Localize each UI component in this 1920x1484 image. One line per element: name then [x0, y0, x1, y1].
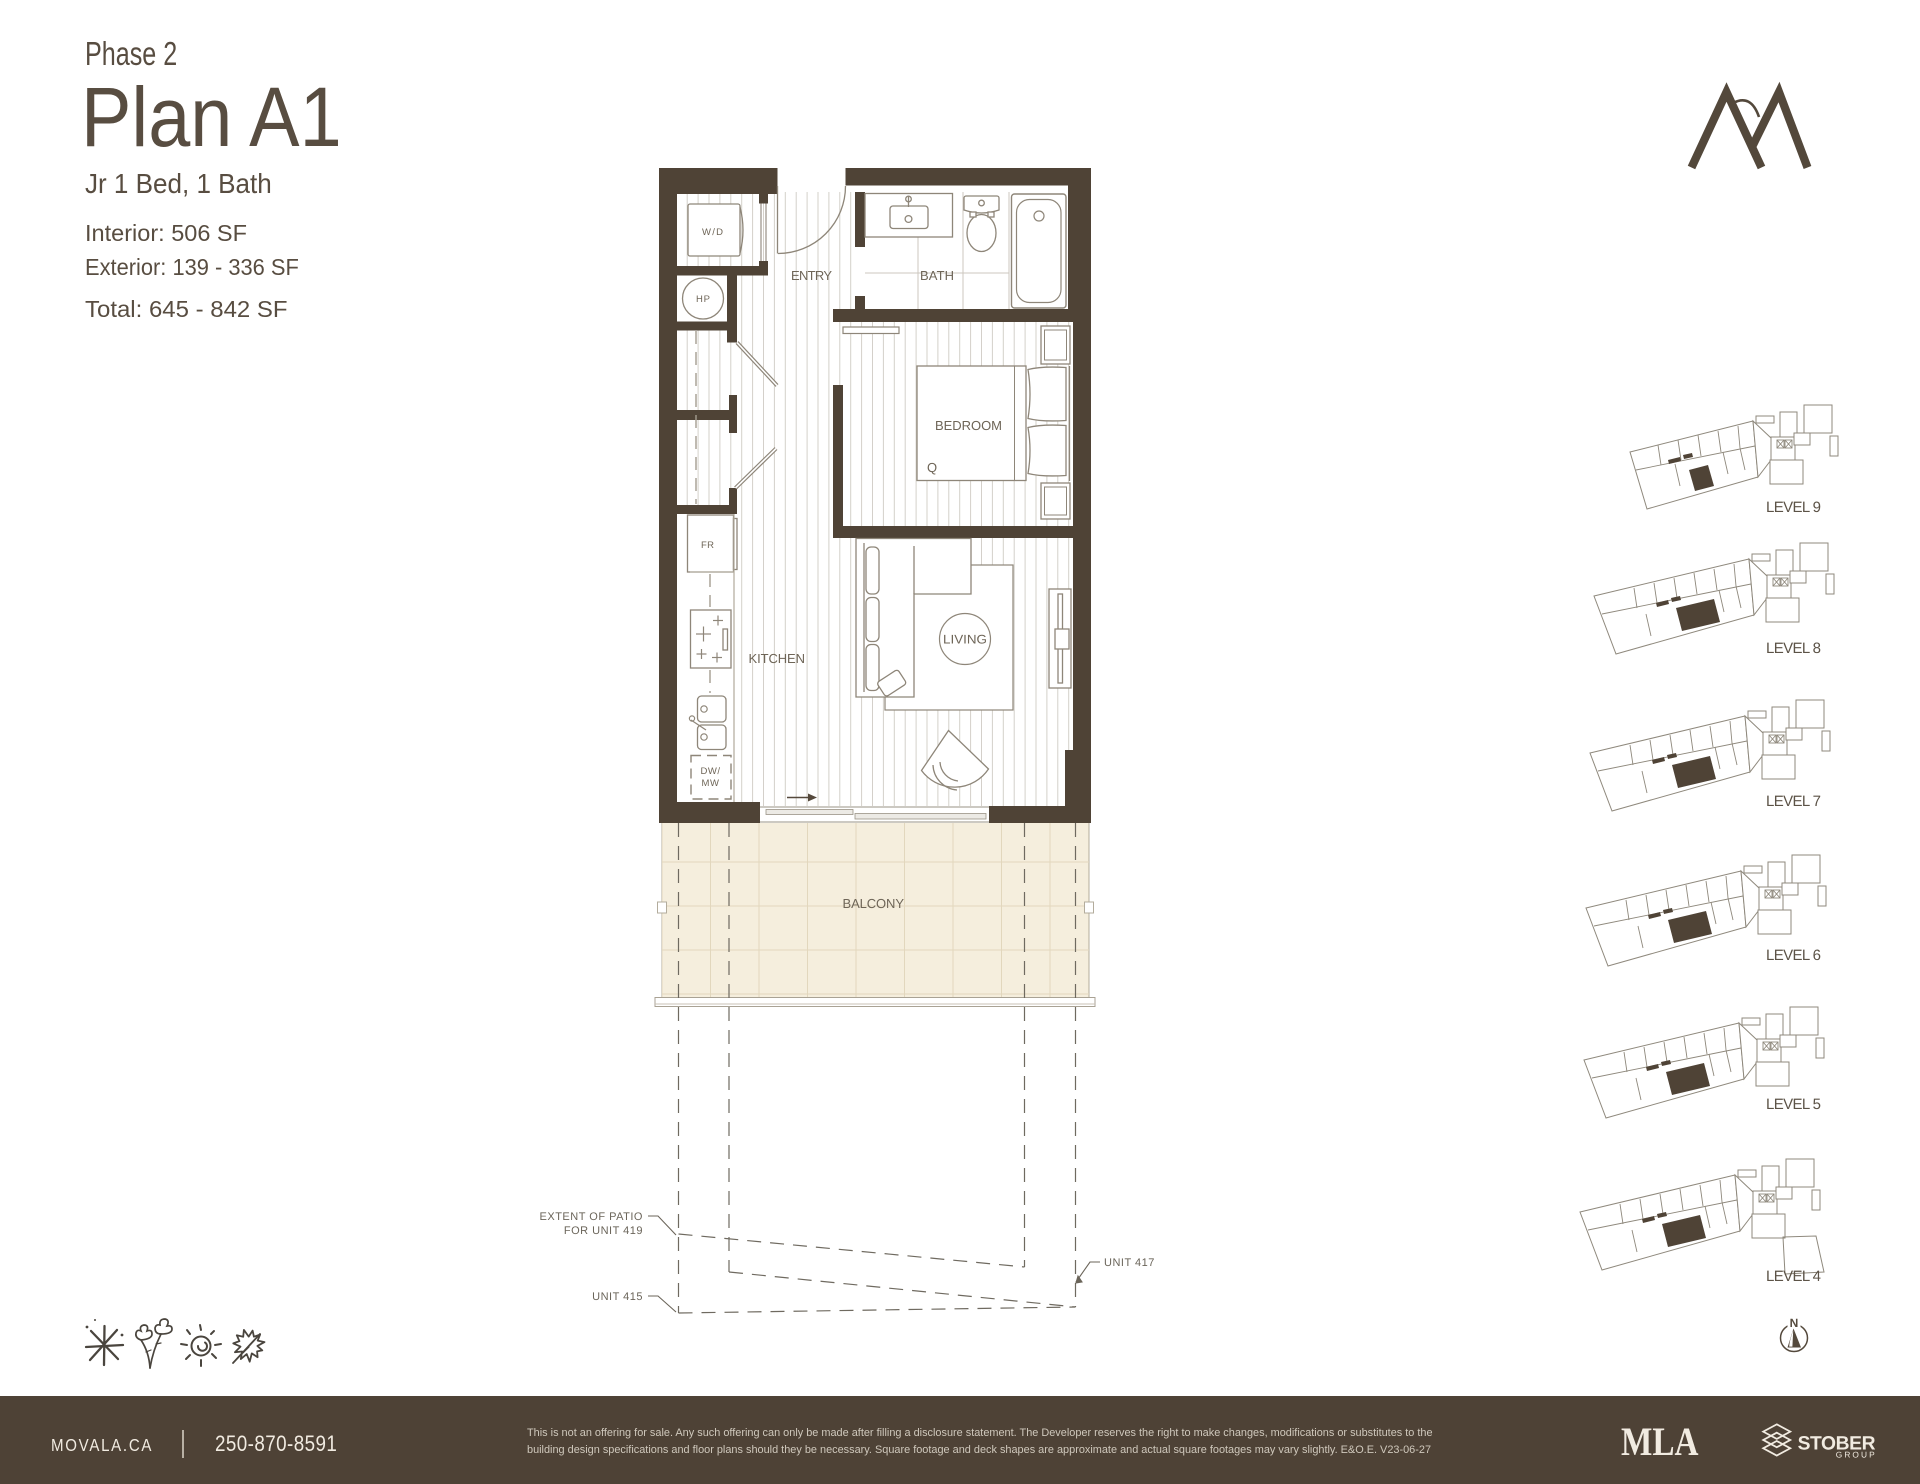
svg-text:ENTRY: ENTRY	[791, 268, 832, 283]
svg-text:GROUP: GROUP	[1836, 1450, 1877, 1459]
svg-text:BEDROOM: BEDROOM	[935, 418, 1002, 433]
svg-text:LIVING: LIVING	[943, 633, 987, 647]
svg-text:DW/: DW/	[701, 766, 721, 777]
svg-text:W/D: W/D	[702, 227, 723, 238]
svg-text:LEVEL 8: LEVEL 8	[1766, 640, 1821, 657]
svg-text:BATH: BATH	[920, 268, 954, 283]
svg-text:LEVEL 4: LEVEL 4	[1766, 1268, 1821, 1285]
svg-text:MW: MW	[702, 778, 720, 789]
svg-text:UNIT 415: UNIT 415	[592, 1291, 643, 1303]
svg-text:FR: FR	[701, 540, 714, 551]
svg-text:HP: HP	[696, 294, 710, 305]
svg-text:LEVEL 9: LEVEL 9	[1766, 499, 1821, 516]
svg-text:FOR UNIT 419: FOR UNIT 419	[564, 1225, 643, 1237]
svg-text:Q: Q	[927, 460, 937, 475]
svg-text:LEVEL 6: LEVEL 6	[1766, 947, 1821, 964]
svg-text:N: N	[1790, 1316, 1799, 1330]
svg-text:BALCONY: BALCONY	[843, 896, 905, 911]
svg-text:LEVEL 5: LEVEL 5	[1766, 1096, 1821, 1113]
svg-text:UNIT 417: UNIT 417	[1104, 1257, 1155, 1269]
svg-text:KITCHEN: KITCHEN	[749, 651, 806, 666]
svg-text:EXTENT OF PATIO: EXTENT OF PATIO	[540, 1211, 643, 1223]
svg-text:LEVEL 7: LEVEL 7	[1766, 793, 1821, 810]
